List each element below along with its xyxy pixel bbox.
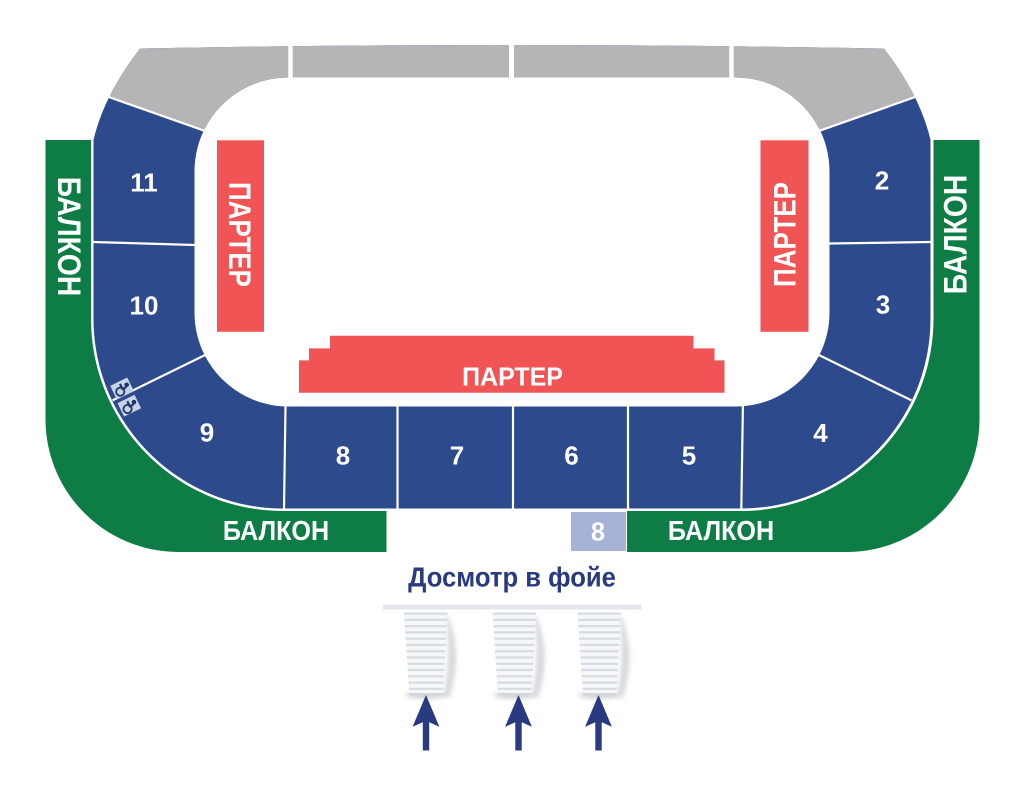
svg-text:ПАРТЕР: ПАРТЕР — [768, 182, 803, 287]
svg-text:ПАРТЕР: ПАРТЕР — [462, 363, 563, 392]
svg-text:8: 8 — [591, 518, 605, 546]
svg-text:3: 3 — [876, 289, 890, 319]
svg-text:БАЛКОН: БАЛКОН — [668, 515, 774, 546]
svg-text:4: 4 — [813, 418, 828, 448]
svg-text:БАЛКОН: БАЛКОН — [50, 177, 86, 296]
svg-text:8: 8 — [336, 440, 350, 470]
svg-text:2: 2 — [875, 165, 889, 195]
svg-text:БАЛКОН: БАЛКОН — [223, 515, 329, 546]
svg-text:11: 11 — [130, 167, 158, 197]
svg-text:7: 7 — [450, 440, 464, 470]
svg-text:Досмотр в фойе: Досмотр в фойе — [408, 561, 616, 592]
svg-text:9: 9 — [200, 417, 214, 447]
svg-text:БАЛКОН: БАЛКОН — [938, 175, 974, 294]
svg-text:5: 5 — [682, 440, 696, 470]
svg-text:10: 10 — [130, 290, 159, 320]
svg-text:6: 6 — [564, 440, 578, 470]
svg-text:ПАРТЕР: ПАРТЕР — [222, 182, 257, 287]
